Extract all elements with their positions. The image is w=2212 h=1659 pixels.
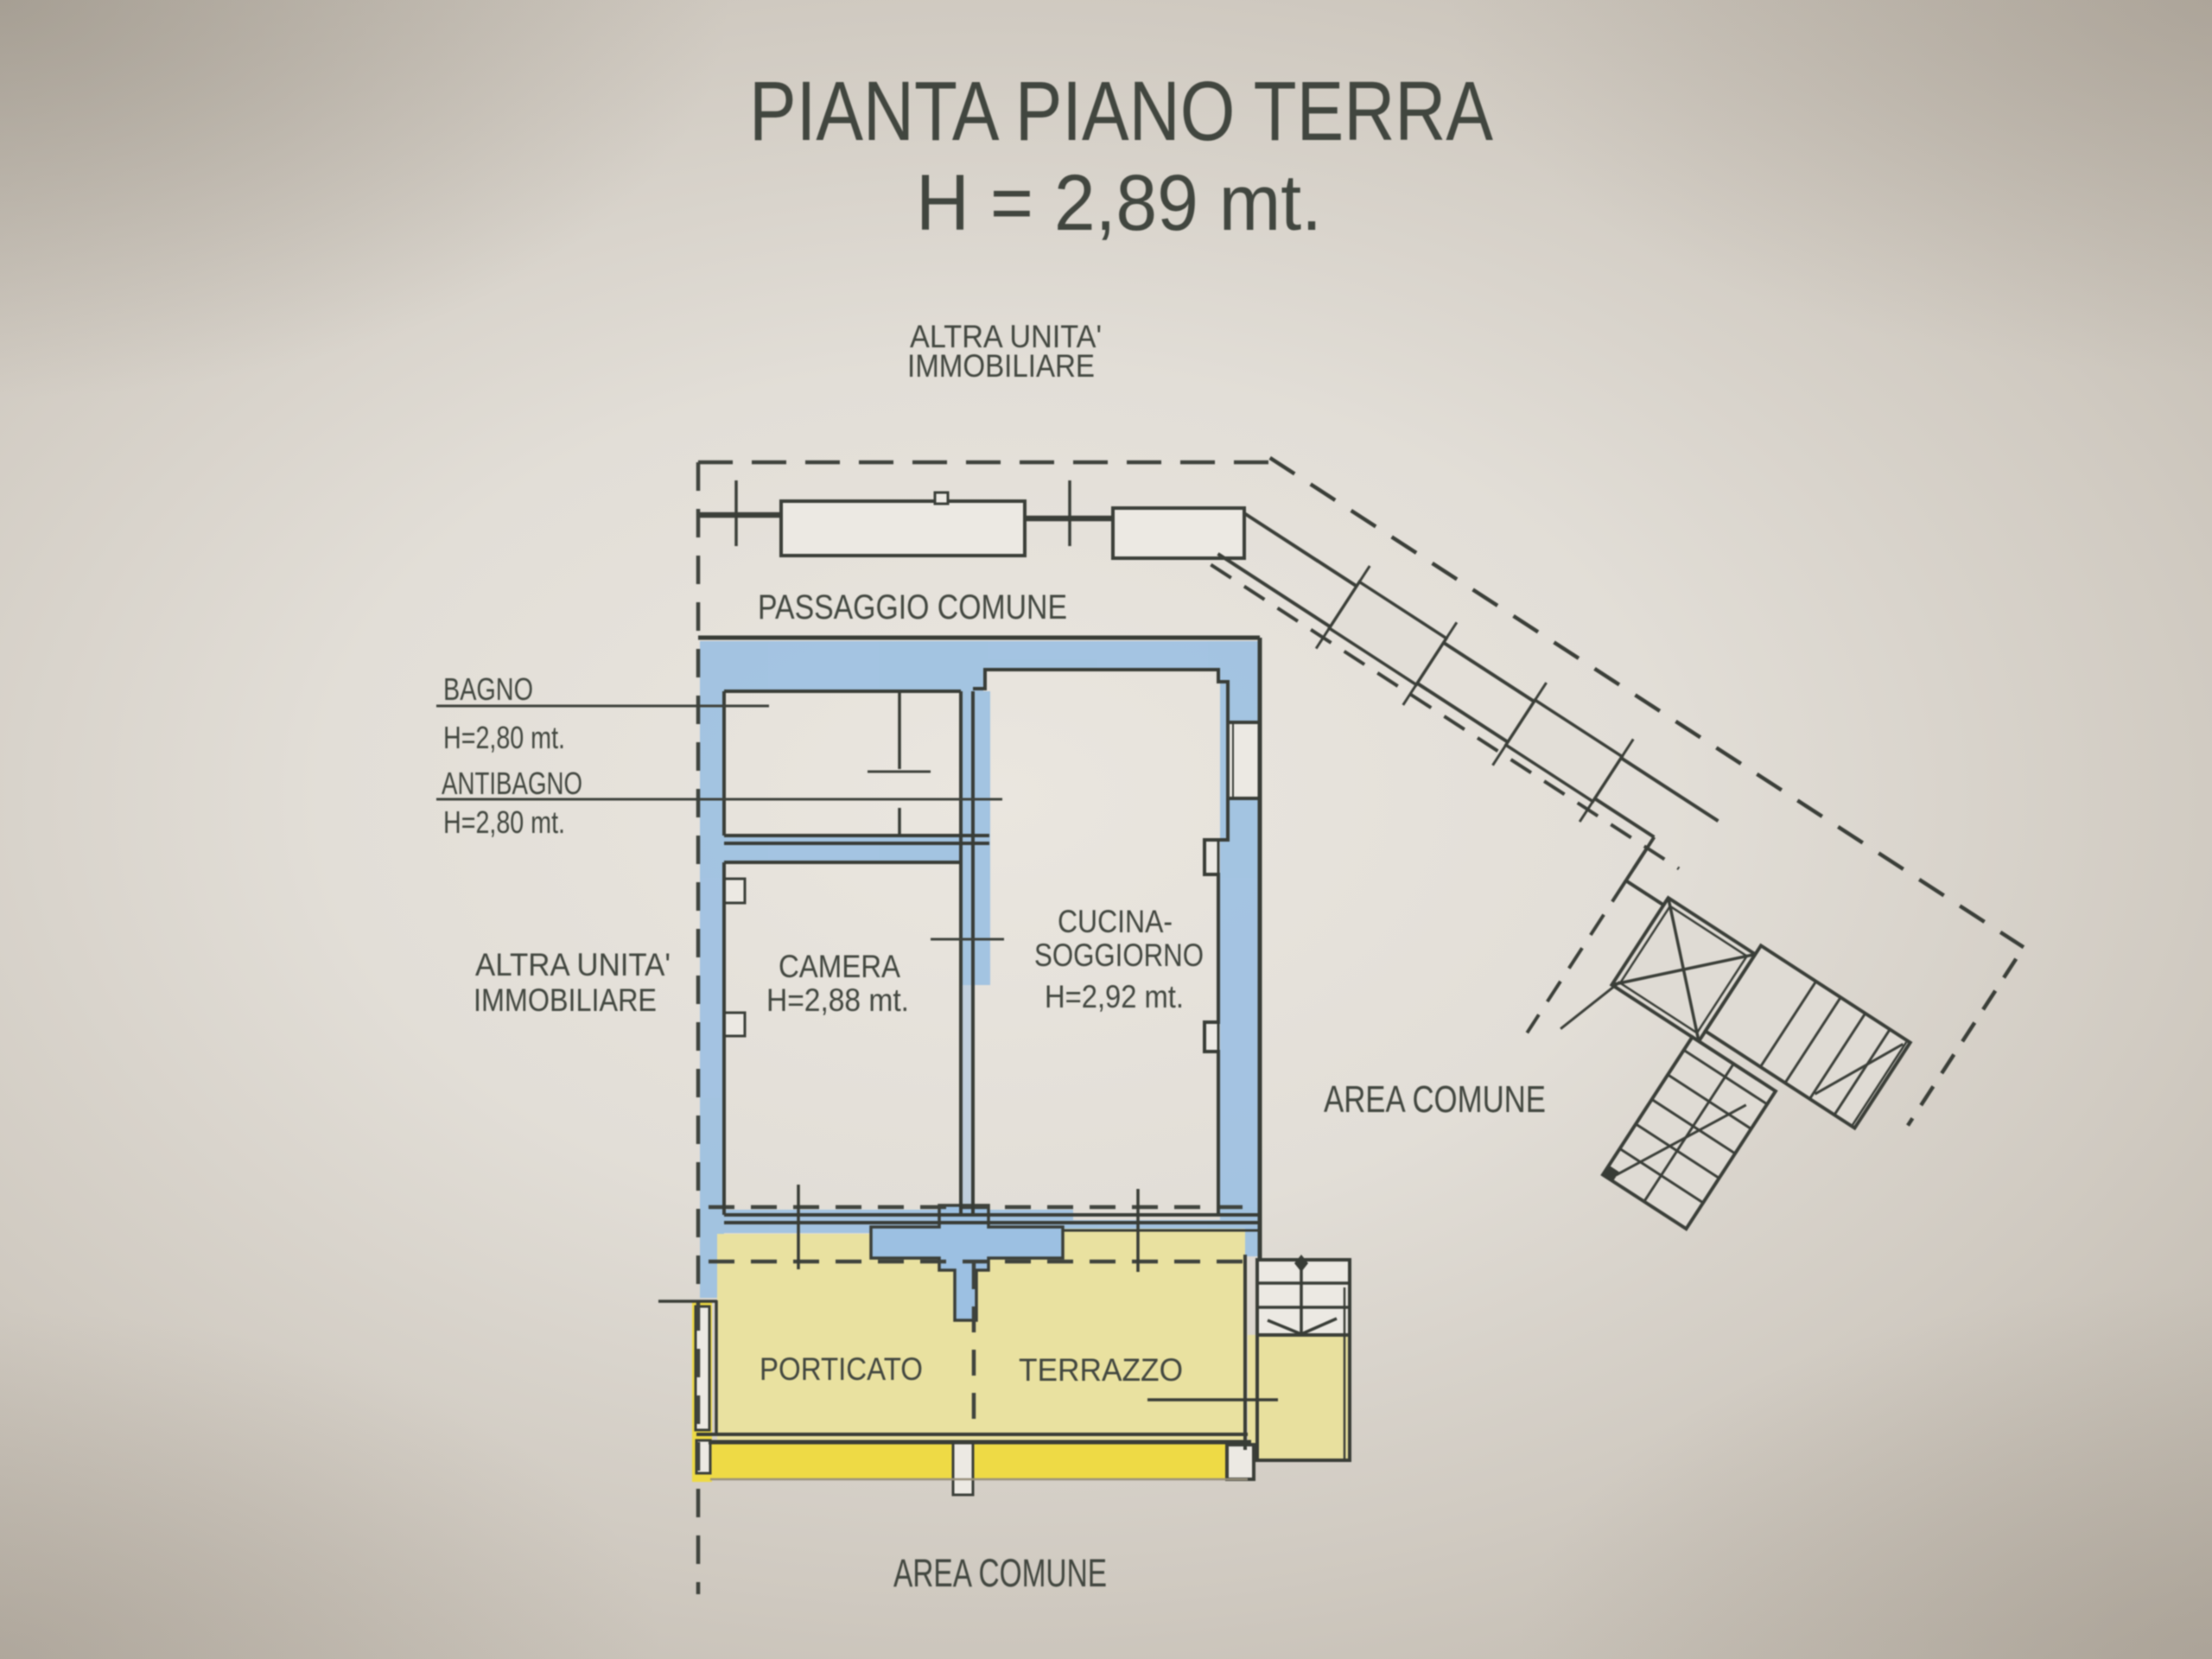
svg-text:ANTIBAGNO: ANTIBAGNO [442, 766, 582, 801]
svg-text:ALTRA UNITA': ALTRA UNITA' [475, 947, 671, 982]
svg-text:PORTICATO: PORTICATO [760, 1351, 923, 1387]
svg-text:IMMOBILIARE: IMMOBILIARE [474, 982, 657, 1018]
svg-text:IMMOBILIARE: IMMOBILIARE [907, 348, 1095, 384]
svg-text:TERRAZZO: TERRAZZO [1019, 1352, 1183, 1388]
svg-text:BAGNO: BAGNO [443, 671, 533, 707]
svg-text:H=2,80 mt.: H=2,80 mt. [443, 720, 565, 755]
svg-text:CAMERA: CAMERA [779, 949, 900, 984]
svg-text:H = 2,89 mt.: H = 2,89 mt. [916, 159, 1322, 247]
svg-text:SOGGIORNO: SOGGIORNO [1034, 938, 1204, 973]
svg-text:PIANTA PIANO TERRA: PIANTA PIANO TERRA [749, 64, 1493, 158]
svg-text:H=2,88 mt.: H=2,88 mt. [766, 982, 909, 1018]
svg-text:AREA COMUNE: AREA COMUNE [893, 1551, 1107, 1595]
svg-text:H=2,92 mt.: H=2,92 mt. [1045, 979, 1184, 1014]
svg-text:PASSAGGIO COMUNE: PASSAGGIO COMUNE [758, 588, 1067, 626]
svg-text:H=2,80 mt.: H=2,80 mt. [443, 804, 565, 840]
svg-text:AREA COMUNE: AREA COMUNE [1324, 1078, 1546, 1121]
svg-text:CUCINA-: CUCINA- [1058, 904, 1173, 939]
